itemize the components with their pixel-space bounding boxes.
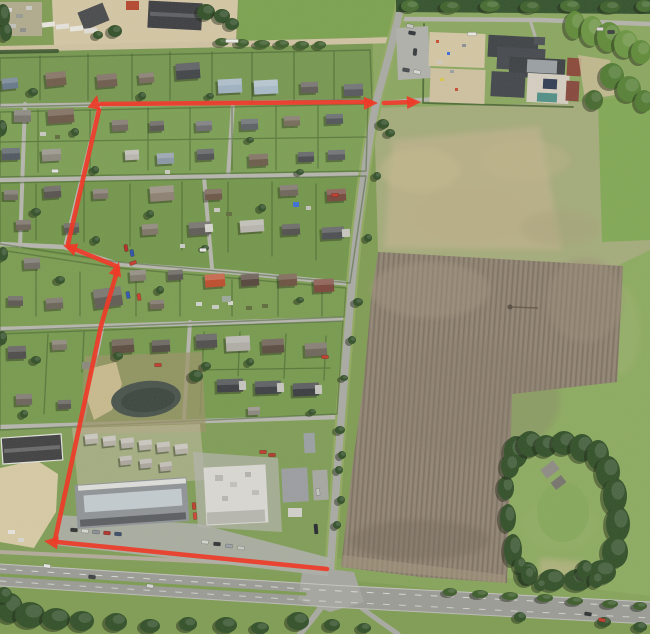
aerial-map (0, 0, 650, 634)
photo-grain (0, 0, 650, 634)
route-segment (101, 102, 371, 104)
map-canvas (0, 0, 650, 634)
